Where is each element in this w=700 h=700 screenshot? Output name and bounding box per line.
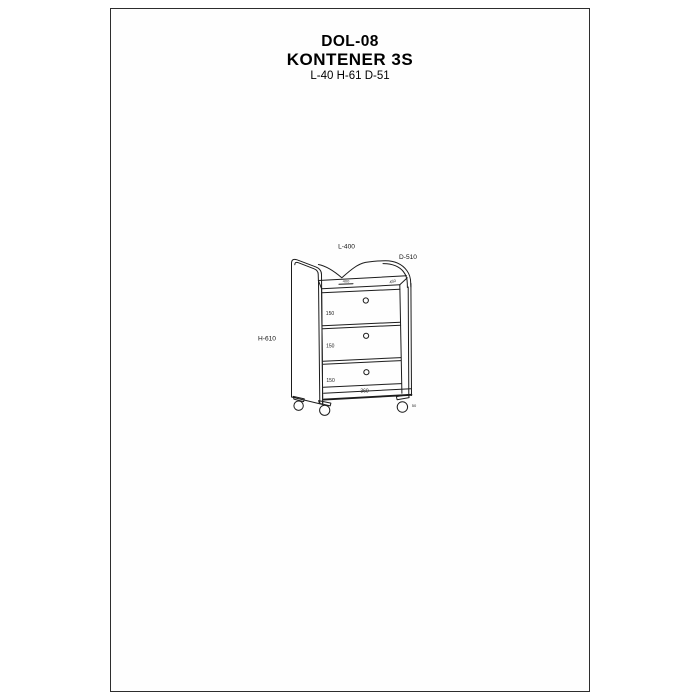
top-width-tick <box>339 284 353 285</box>
top-rail-line <box>322 289 400 293</box>
drawer3-bottom-line <box>324 384 402 388</box>
width-dim-label: L-400 <box>338 244 355 251</box>
drawer2-knob <box>364 333 369 338</box>
drawer3-height-label: 150 <box>326 378 335 384</box>
depth-dim-label: D-510 <box>399 254 417 261</box>
back-rim-profile <box>318 261 411 287</box>
front-width-label: 360 <box>360 388 369 394</box>
back-rim <box>318 261 411 288</box>
drawer2-height-label: 150 <box>326 344 335 350</box>
caster-wheel <box>397 402 407 412</box>
top-depth-label: 450 <box>389 278 398 285</box>
drawer3-knob <box>364 370 369 375</box>
top-surface: 400 450 <box>318 276 407 289</box>
drawer1-height-label: 150 <box>326 311 335 317</box>
caster-height-label: 50 <box>412 403 417 408</box>
height-dim-label: H-610 <box>258 336 276 343</box>
cabinet-technical-drawing: 400 450 150 150 150 360 50 <box>0 0 700 700</box>
caster-wheel <box>294 401 303 410</box>
top-width-label: 400 <box>343 279 350 284</box>
bottom-edge-line <box>324 395 412 400</box>
caster-wheel <box>320 405 330 415</box>
drawer1-knob <box>363 298 368 303</box>
drawer-front: 150 150 150 360 <box>322 289 412 399</box>
